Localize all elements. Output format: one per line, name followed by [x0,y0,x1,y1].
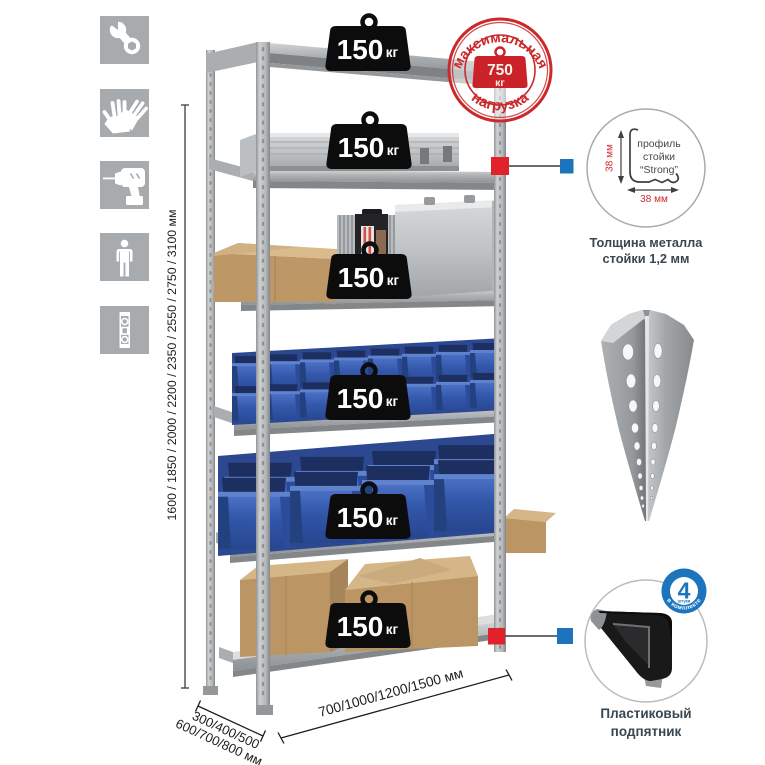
svg-text:профиль: профиль [637,138,681,150]
svg-text:кг: кг [386,622,399,637]
svg-text:кг: кг [387,273,400,288]
svg-text:Пластиковый: Пластиковый [600,706,691,721]
svg-text:150: 150 [338,262,385,293]
svg-text:Толщина металла: Толщина металла [590,235,704,250]
svg-text:кг: кг [495,77,505,89]
svg-text:38 мм: 38 мм [640,194,668,205]
svg-text:штуки: штуки [678,599,691,604]
svg-text:кг: кг [386,394,399,409]
svg-text:подпятник: подпятник [611,724,682,739]
svg-text:стойки: стойки [643,151,675,163]
svg-text:“Strong”: “Strong” [640,164,678,176]
svg-text:кг: кг [386,513,399,528]
svg-text:150: 150 [338,132,385,163]
svg-text:38 мм: 38 мм [605,144,616,172]
svg-text:150: 150 [337,34,384,65]
svg-text:150: 150 [337,502,384,533]
svg-text:кг: кг [386,45,399,60]
svg-text:150: 150 [337,611,384,642]
svg-text:кг: кг [387,143,400,158]
svg-text:150: 150 [337,383,384,414]
svg-text:стойки 1,2 мм: стойки 1,2 мм [602,251,689,266]
svg-text:1600 / 1850 / 2000 / 2200 / 23: 1600 / 1850 / 2000 / 2200 / 2350 / 2550 … [165,210,179,521]
